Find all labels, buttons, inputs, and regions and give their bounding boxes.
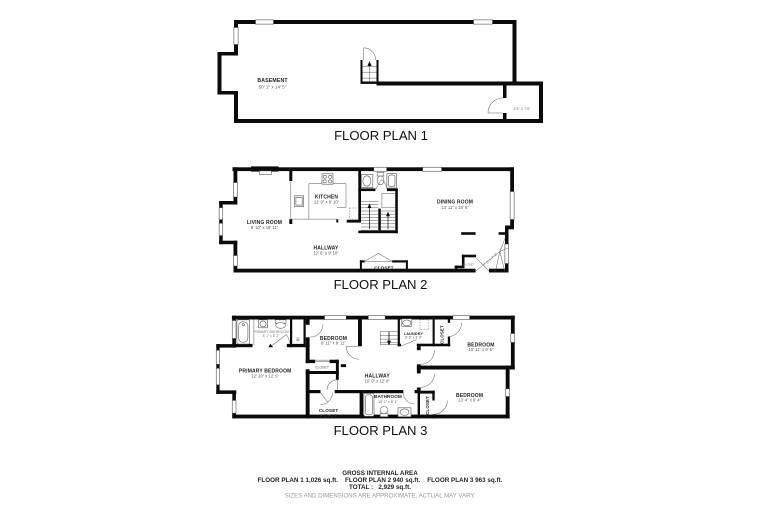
svg-text:12' 9" x 9' 10": 12' 9" x 9' 10" [314,200,340,205]
svg-text:CLOSET: CLOSET [463,262,475,266]
svg-text:TOTAL : 2,929 sq.ft.: TOTAL : 2,929 sq.ft. [349,484,411,491]
svg-text:CLOSET: CLOSET [319,408,339,413]
svg-text:FLOOR PLAN 1 1,026 sq.ft. F: FLOOR PLAN 1 1,026 sq.ft. FLOOR PLAN 2 9… [258,477,503,484]
svg-text:6' 10" x 18' 11": 6' 10" x 18' 11" [251,225,279,230]
svg-text:FLOOR PLAN 2: FLOOR PLAN 2 [334,277,428,292]
svg-text:13' 4" x 9' 4": 13' 4" x 9' 4" [458,398,481,403]
svg-text:FLOOR PLAN 1: FLOOR PLAN 1 [334,128,428,143]
svg-text:CLOSET: CLOSET [439,325,444,344]
svg-text:4'8" X 7'8": 4'8" X 7'8" [513,107,531,111]
svg-text:BASEMENT: BASEMENT [257,78,288,84]
svg-text:8' 1" x 8' 2": 8' 1" x 8' 2" [263,334,281,338]
svg-text:6' 6" x 3' 3": 6' 6" x 3' 3" [405,336,423,340]
svg-text:SIZES AND DIMENSIONS ARE APPRO: SIZES AND DIMENSIONS ARE APPROXIMATE, AC… [285,493,476,500]
svg-text:9' 2" x 5' 1": 9' 2" x 5' 1" [320,414,338,418]
svg-text:CLOSET: CLOSET [374,265,394,270]
svg-text:10' 1" x 5' 1": 10' 1" x 5' 1" [378,400,398,404]
svg-text:GROSS INTERNAL AREA: GROSS INTERNAL AREA [342,470,418,477]
svg-text:50' 1" x 14' 5": 50' 1" x 14' 5" [259,85,287,90]
svg-text:CLOSET: CLOSET [425,396,430,415]
svg-text:13' 11" x 19' 6": 13' 11" x 19' 6" [441,205,469,210]
svg-text:CLOSET: CLOSET [315,365,330,369]
svg-text:12' 10" x 12' 5": 12' 10" x 12' 5" [251,374,279,379]
svg-text:10' 11" x 9' 5": 10' 11" x 9' 5" [469,347,494,352]
svg-text:BATHROOM: BATHROOM [374,394,402,399]
svg-text:10' 9" x 12' 8": 10' 9" x 12' 8" [365,378,391,383]
svg-text:8' 11" x 8' 11": 8' 11" x 8' 11" [321,341,346,346]
svg-text:FLOOR PLAN 3: FLOOR PLAN 3 [334,423,428,438]
svg-text:12' 6" x 9' 10": 12' 6" x 9' 10" [313,251,339,256]
